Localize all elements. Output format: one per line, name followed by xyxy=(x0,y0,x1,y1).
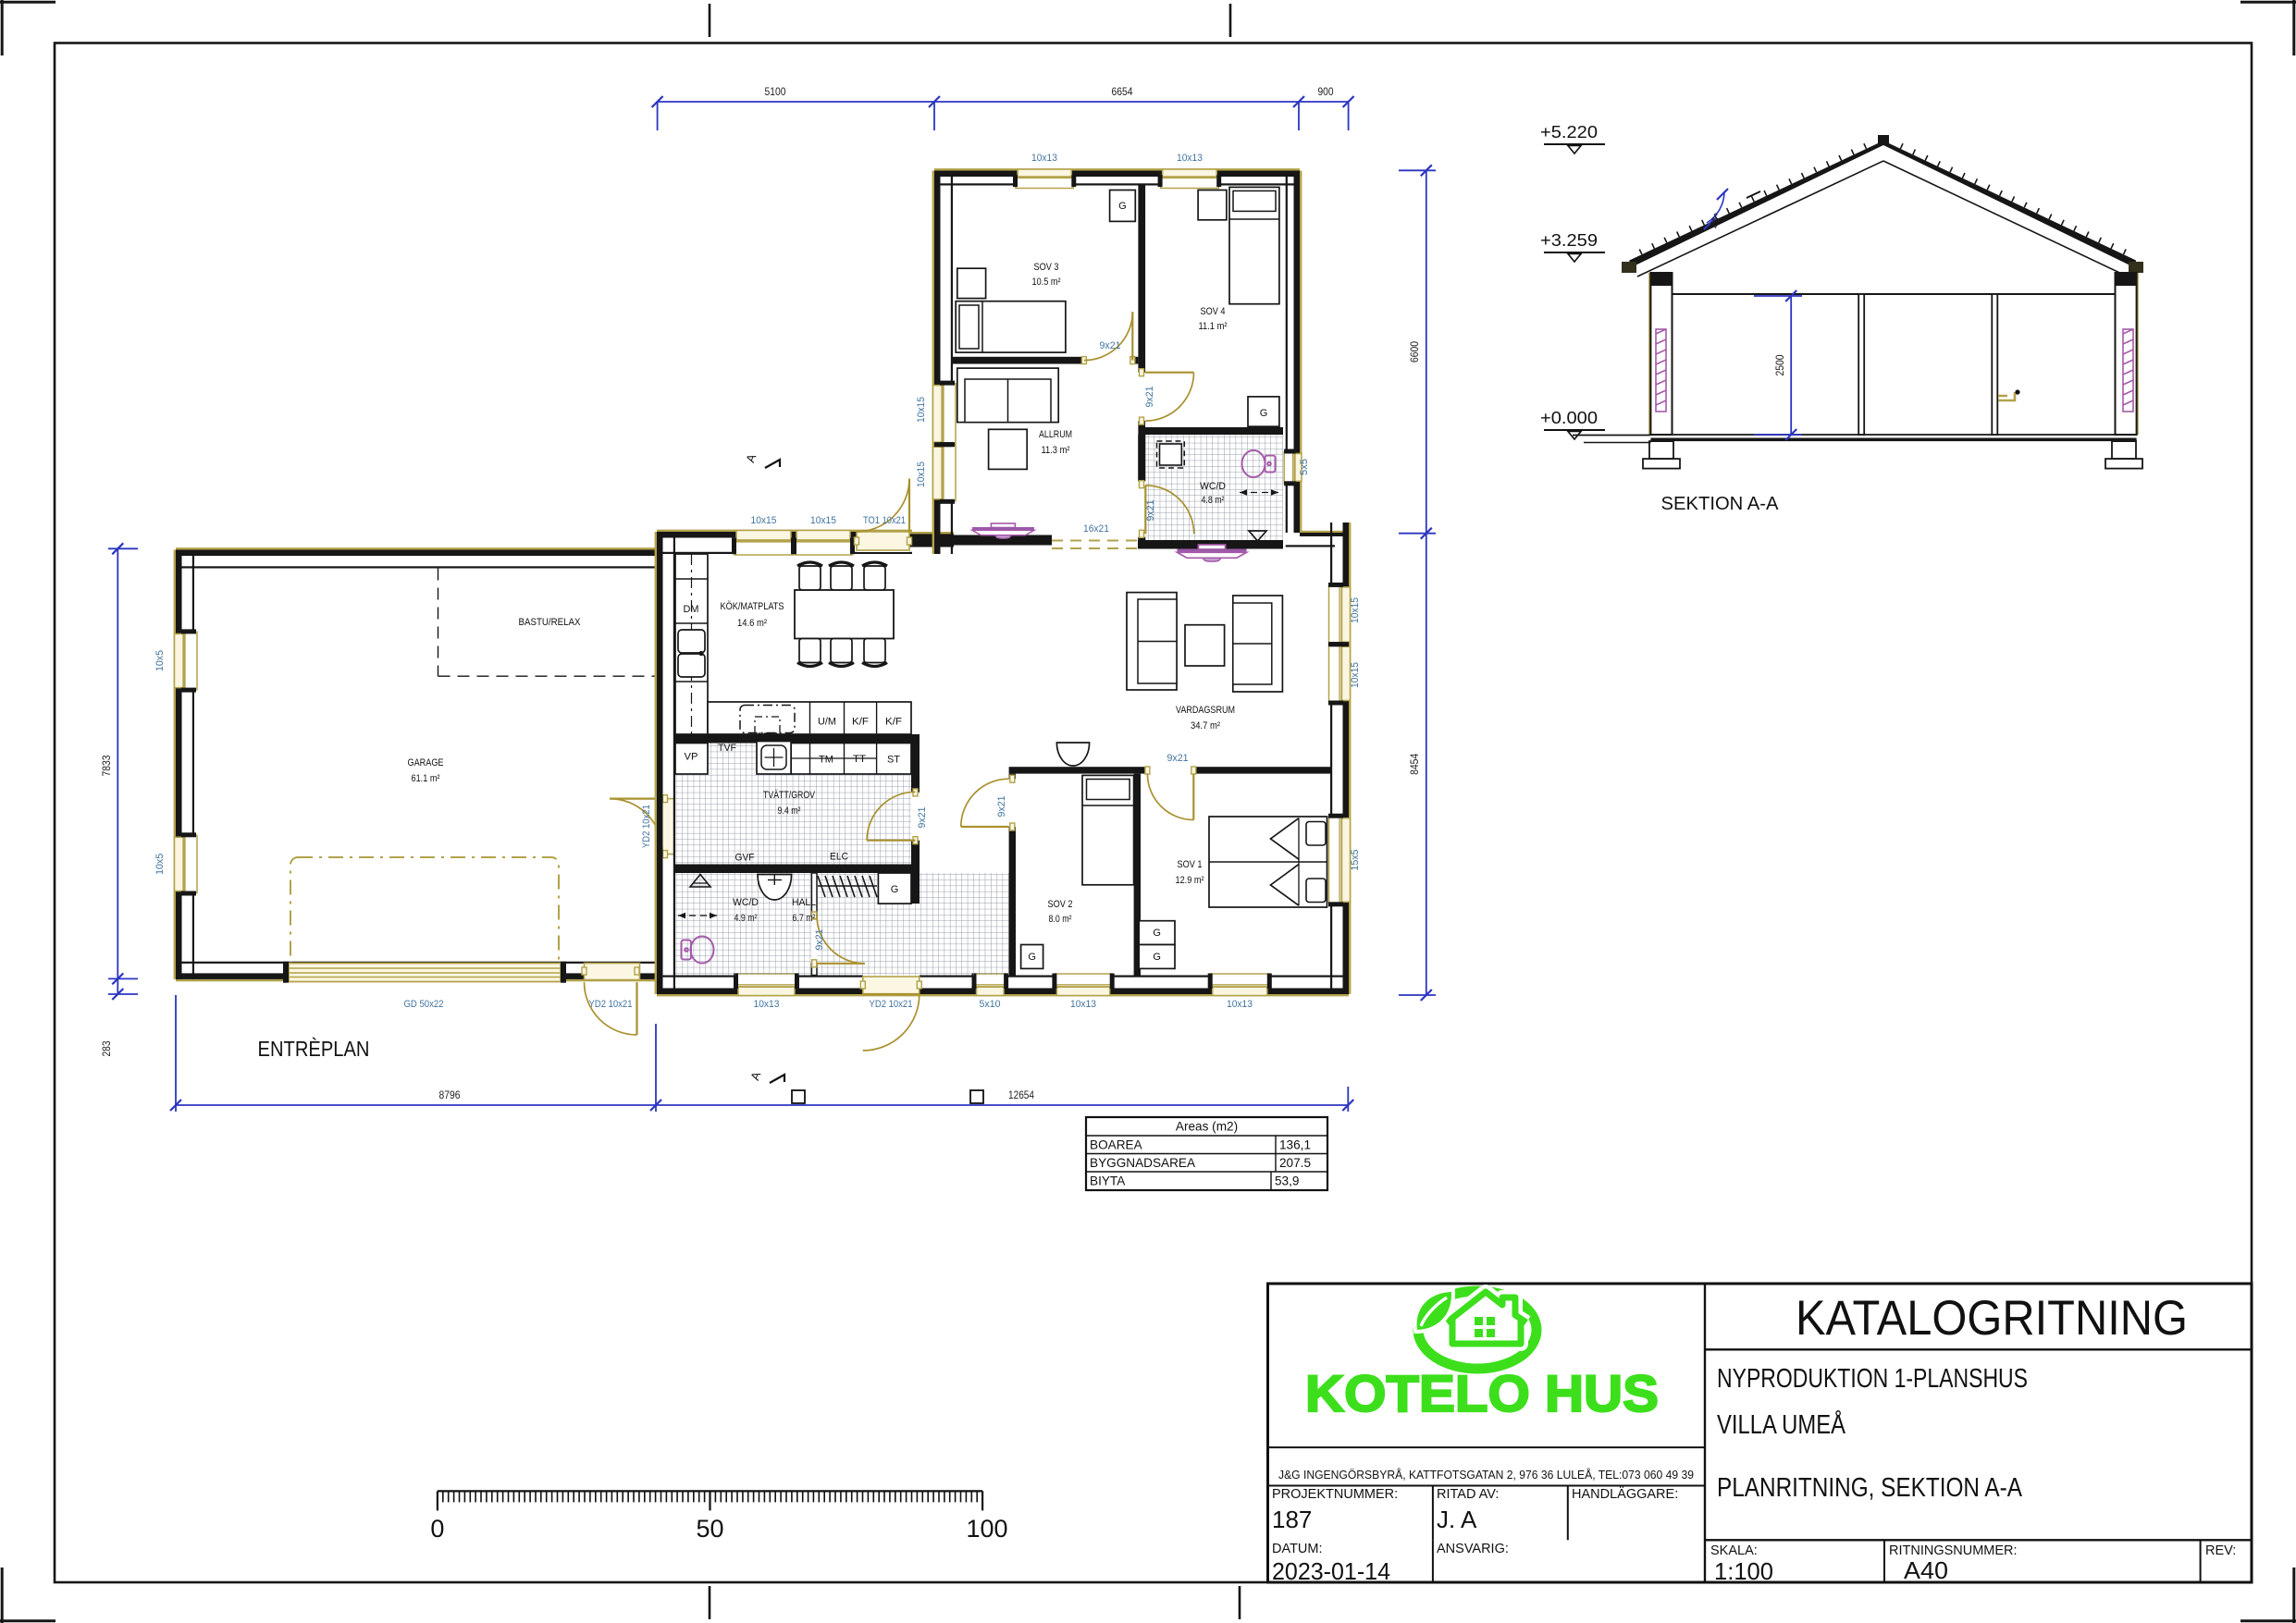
svg-text:BYGGNADSAREA: BYGGNADSAREA xyxy=(1090,1156,1196,1170)
svg-text:RITAD AV:: RITAD AV: xyxy=(1437,1487,1499,1502)
svg-text:12.9 m²: 12.9 m² xyxy=(1176,875,1204,886)
svg-text:NYPRODUKTION 1-PLANSHUS: NYPRODUKTION 1-PLANSHUS xyxy=(1717,1364,2028,1394)
svg-text:207.5: 207.5 xyxy=(1279,1156,1311,1170)
svg-text:50: 50 xyxy=(696,1515,723,1543)
svg-text:15x5: 15x5 xyxy=(1350,850,1361,871)
svg-text:0: 0 xyxy=(430,1515,444,1543)
svg-text:10x15: 10x15 xyxy=(916,397,927,423)
svg-text:VARDAGSRUM: VARDAGSRUM xyxy=(1176,705,1235,716)
svg-text:12654: 12654 xyxy=(1008,1088,1034,1101)
svg-text:ANSVARIG:: ANSVARIG: xyxy=(1437,1542,1509,1556)
svg-text:8.0 m²: 8.0 m² xyxy=(1049,914,1072,925)
svg-text:HANDLÄGGARE:: HANDLÄGGARE: xyxy=(1572,1486,1678,1502)
svg-text:5x10: 5x10 xyxy=(980,999,1001,1010)
svg-text:J&G INGENGÖRSBYRÅ, KATTFOTSGAT: J&G INGENGÖRSBYRÅ, KATTFOTSGATAN 2, 976 … xyxy=(1278,1468,1694,1482)
svg-text:Areas (m2): Areas (m2) xyxy=(1176,1120,1238,1134)
svg-text:136,1: 136,1 xyxy=(1279,1138,1311,1152)
svg-text:GVF: GVF xyxy=(735,853,755,864)
svg-text:4.8 m²: 4.8 m² xyxy=(1202,495,1225,506)
svg-text:11.3 m²: 11.3 m² xyxy=(1042,445,1070,456)
svg-text:DM: DM xyxy=(684,604,699,615)
svg-text:9x21: 9x21 xyxy=(1144,387,1155,408)
svg-text:TVÄTT/GROV: TVÄTT/GROV xyxy=(763,790,816,801)
svg-text:YD2 10x21: YD2 10x21 xyxy=(641,805,652,848)
svg-text:10x15: 10x15 xyxy=(751,515,777,526)
svg-text:9x21: 9x21 xyxy=(814,929,825,951)
svg-text:+0.000: +0.000 xyxy=(1540,409,1598,427)
svg-text:4.9 m²: 4.9 m² xyxy=(734,913,758,924)
svg-text:187: 187 xyxy=(1272,1506,1312,1533)
svg-text:100: 100 xyxy=(966,1515,1007,1543)
svg-text:PROJEKTNUMMER:: PROJEKTNUMMER: xyxy=(1272,1487,1398,1502)
svg-text:U/M: U/M xyxy=(818,717,836,728)
svg-text:BIYTA: BIYTA xyxy=(1090,1174,1126,1188)
svg-text:34.7 m²: 34.7 m² xyxy=(1191,720,1220,732)
svg-text:10x5: 10x5 xyxy=(154,650,166,671)
svg-text:8454: 8454 xyxy=(1408,754,1421,775)
svg-text:SOV 3: SOV 3 xyxy=(1034,262,1059,273)
svg-text:TT: TT xyxy=(853,754,866,765)
svg-text:10x15: 10x15 xyxy=(1350,662,1361,688)
svg-text:KATALOGRITNING: KATALOGRITNING xyxy=(1796,1291,2188,1346)
svg-text:YD2 10x21: YD2 10x21 xyxy=(589,999,633,1010)
svg-text:VILLA UMEÅ: VILLA UMEÅ xyxy=(1717,1409,1846,1440)
svg-text:REV:: REV: xyxy=(2205,1543,2236,1558)
svg-text:ENTRÈPLAN: ENTRÈPLAN xyxy=(258,1037,370,1061)
svg-text:TVF: TVF xyxy=(718,743,736,754)
svg-text:TM: TM xyxy=(819,755,833,766)
svg-text:10x13: 10x13 xyxy=(1031,153,1057,164)
svg-text:9x21: 9x21 xyxy=(1145,500,1156,522)
svg-text:SKALA:: SKALA: xyxy=(1710,1543,1758,1558)
svg-text:10x13: 10x13 xyxy=(1227,999,1253,1010)
svg-text:J. A: J. A xyxy=(1437,1506,1477,1533)
svg-text:14.6 m²: 14.6 m² xyxy=(737,618,767,629)
svg-text:283: 283 xyxy=(100,1040,113,1056)
svg-text:SOV 2: SOV 2 xyxy=(1048,899,1073,910)
svg-text:9x21: 9x21 xyxy=(1100,340,1121,351)
svg-text:A40: A40 xyxy=(1904,1556,1948,1584)
svg-text:WC/D: WC/D xyxy=(733,897,759,908)
svg-text:10x15: 10x15 xyxy=(916,461,927,487)
svg-text:9.4 m²: 9.4 m² xyxy=(778,805,801,817)
svg-text:K/F: K/F xyxy=(885,717,902,728)
svg-text:5100: 5100 xyxy=(765,85,786,98)
svg-text:ELC: ELC xyxy=(830,852,848,863)
svg-text:PLANRITNING, SEKTION A-A: PLANRITNING, SEKTION A-A xyxy=(1717,1473,2023,1503)
svg-text:ST: ST xyxy=(887,755,900,766)
svg-text:53,9: 53,9 xyxy=(1275,1174,1299,1188)
svg-text:11.1 m²: 11.1 m² xyxy=(1199,321,1228,332)
svg-text:10x13: 10x13 xyxy=(1070,999,1096,1010)
svg-text:9x21: 9x21 xyxy=(917,807,928,829)
svg-text:KOTELO HUS: KOTELO HUS xyxy=(1305,1364,1659,1422)
svg-text:16x21: 16x21 xyxy=(1083,523,1109,535)
svg-text:WC/D: WC/D xyxy=(1200,481,1226,492)
svg-text:+5.220: +5.220 xyxy=(1540,123,1598,141)
svg-text:6654: 6654 xyxy=(1112,85,1133,98)
svg-text:+3.259: +3.259 xyxy=(1540,231,1598,250)
svg-text:10x15: 10x15 xyxy=(1350,597,1361,623)
svg-text:KÖK/MATPLATS: KÖK/MATPLATS xyxy=(721,601,784,612)
svg-text:61.1 m²: 61.1 m² xyxy=(412,773,440,784)
svg-text:GARAGE: GARAGE xyxy=(408,757,444,768)
svg-text:SOV 1: SOV 1 xyxy=(1178,859,1203,870)
svg-text:VP: VP xyxy=(685,752,698,763)
svg-text:K/F: K/F xyxy=(852,717,869,728)
svg-text:G: G xyxy=(891,884,899,895)
svg-text:8796: 8796 xyxy=(439,1088,461,1101)
svg-text:9x21: 9x21 xyxy=(1167,753,1189,764)
svg-text:5x5: 5x5 xyxy=(1299,459,1310,475)
svg-text:SEKTION A-A: SEKTION A-A xyxy=(1661,494,1780,514)
svg-text:G: G xyxy=(1153,952,1161,963)
svg-text:10x5: 10x5 xyxy=(154,854,166,875)
svg-text:10x13: 10x13 xyxy=(1177,153,1203,164)
svg-text:BASTU/RELAX: BASTU/RELAX xyxy=(519,617,582,628)
svg-text:7833: 7833 xyxy=(100,755,113,776)
svg-text:2023-01-14: 2023-01-14 xyxy=(1272,1557,1390,1585)
svg-text:2500: 2500 xyxy=(1773,354,1786,375)
svg-text:HALL: HALL xyxy=(792,897,816,908)
svg-text:6.7 m²: 6.7 m² xyxy=(793,913,816,924)
svg-text:G: G xyxy=(1028,952,1036,963)
svg-text:TO1 10x21: TO1 10x21 xyxy=(863,515,906,526)
svg-text:YD2 10x21: YD2 10x21 xyxy=(870,999,913,1010)
svg-text:G: G xyxy=(1118,201,1127,212)
svg-text:GD 50x22: GD 50x22 xyxy=(404,999,444,1010)
svg-text:900: 900 xyxy=(1318,85,1334,98)
svg-text:SOV 4: SOV 4 xyxy=(1201,306,1226,317)
svg-text:G: G xyxy=(1260,408,1268,419)
svg-text:BOAREA: BOAREA xyxy=(1090,1138,1143,1152)
svg-text:9x21: 9x21 xyxy=(996,796,1007,818)
svg-text:ALLRUM: ALLRUM xyxy=(1039,429,1072,440)
svg-text:6600: 6600 xyxy=(1408,341,1421,363)
svg-text:10.5 m²: 10.5 m² xyxy=(1032,277,1061,288)
svg-text:DATUM:: DATUM: xyxy=(1272,1542,1323,1556)
svg-text:10x13: 10x13 xyxy=(754,999,780,1010)
svg-text:G: G xyxy=(1153,928,1161,939)
svg-text:1:100: 1:100 xyxy=(1714,1557,1773,1585)
svg-text:10x15: 10x15 xyxy=(810,515,836,526)
